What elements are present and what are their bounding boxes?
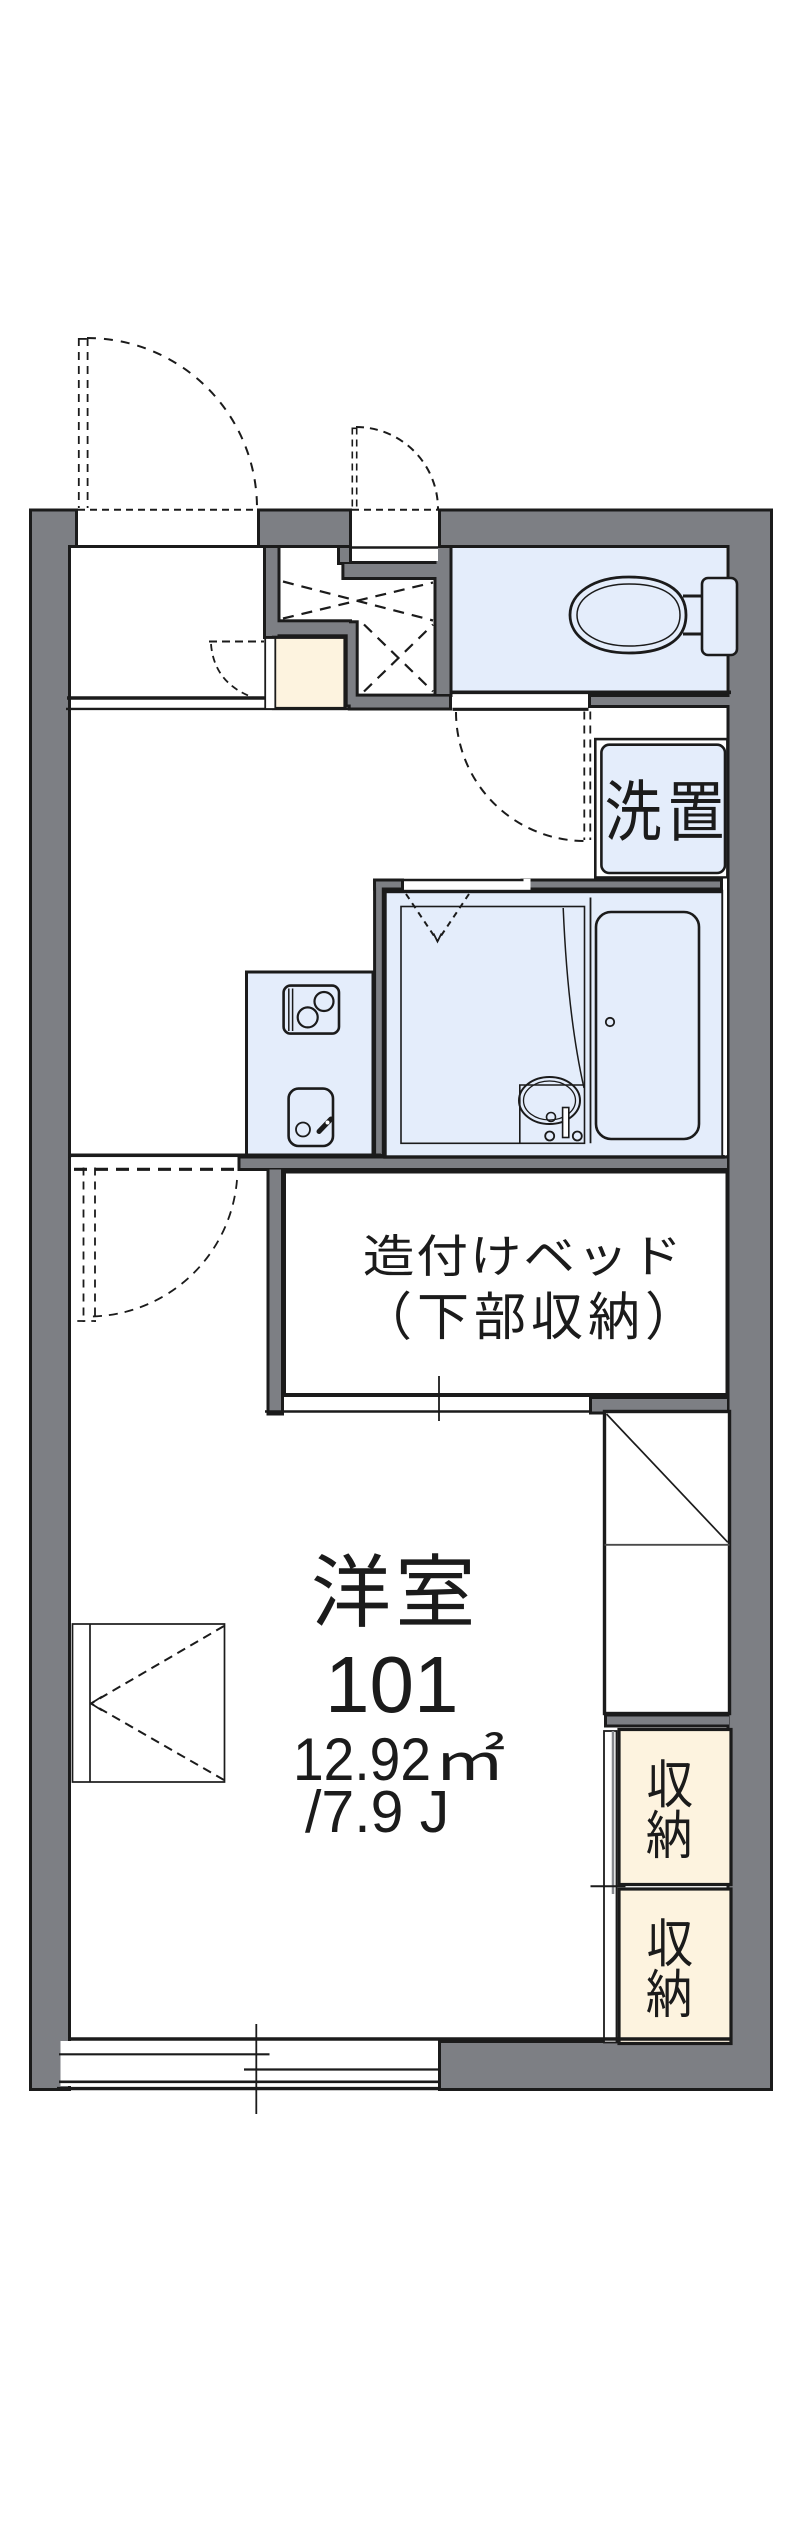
svg-text:/7.9 J: /7.9 J [305,1779,449,1845]
svg-text:101: 101 [325,1640,458,1729]
